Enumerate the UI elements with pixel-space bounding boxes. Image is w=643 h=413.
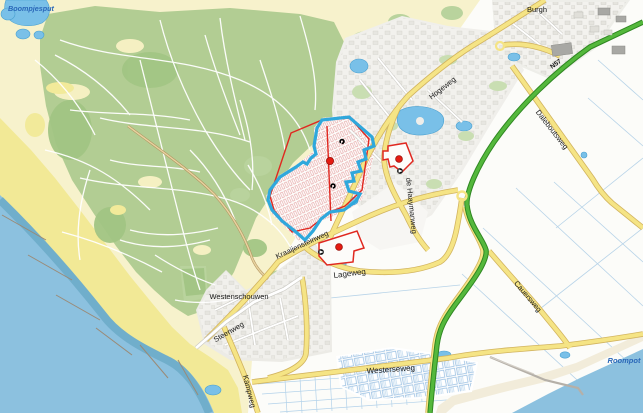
svg-text:Boompjesput: Boompjesput — [8, 4, 55, 13]
svg-text:Burgh: Burgh — [527, 5, 547, 14]
svg-text:Westenschouwen: Westenschouwen — [209, 292, 268, 301]
svg-text:Roompot: Roompot — [608, 356, 641, 365]
